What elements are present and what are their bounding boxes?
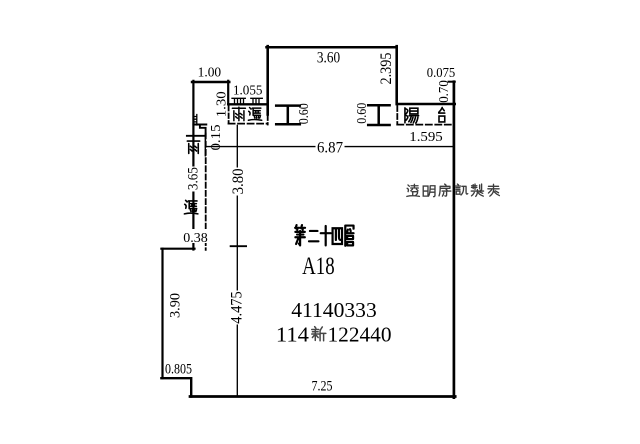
svg-text:1.30: 1.30: [215, 91, 230, 117]
svg-text:7.25: 7.25: [312, 379, 333, 395]
svg-text:0.805: 0.805: [165, 361, 192, 377]
svg-text:0.60: 0.60: [355, 103, 370, 124]
svg-text:3.65: 3.65: [186, 167, 202, 190]
svg-text:0.075: 0.075: [427, 66, 456, 81]
svg-text:0.70: 0.70: [437, 80, 452, 103]
svg-text:6.87: 6.87: [317, 140, 343, 157]
svg-text:3.90: 3.90: [168, 293, 184, 318]
svg-text:4.475: 4.475: [229, 291, 246, 324]
svg-text:1.595: 1.595: [409, 130, 443, 145]
svg-text:A18: A18: [302, 251, 335, 280]
svg-text:0.15: 0.15: [209, 125, 224, 151]
svg-text:1.00: 1.00: [198, 66, 222, 81]
svg-text:114: 114: [276, 322, 310, 346]
svg-text:0.60: 0.60: [297, 103, 312, 124]
svg-text:41140333: 41140333: [291, 298, 377, 322]
svg-text:3.60: 3.60: [317, 49, 340, 66]
svg-text:3.80: 3.80: [230, 168, 247, 194]
svg-text:122440: 122440: [328, 322, 392, 346]
svg-text:2.395: 2.395: [378, 52, 395, 84]
svg-text:1.055: 1.055: [233, 83, 263, 98]
svg-text:0.38: 0.38: [183, 231, 208, 246]
